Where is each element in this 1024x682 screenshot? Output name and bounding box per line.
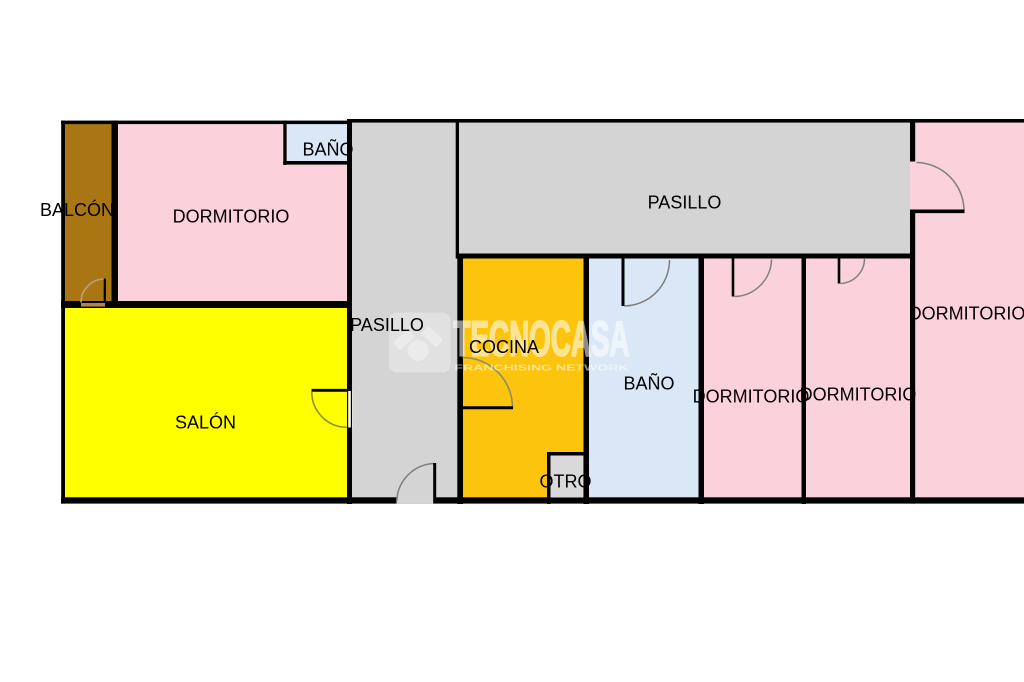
svg-text:BALCÓN: BALCÓN [40,199,114,220]
svg-text:DORMITORIO: DORMITORIO [173,207,290,227]
svg-text:OTRO: OTRO [540,472,592,492]
svg-text:DORMITORIO: DORMITORIO [693,387,810,407]
svg-text:FRANCHISING NETWORK: FRANCHISING NETWORK [455,363,630,373]
svg-text:BAÑO: BAÑO [302,139,353,160]
svg-text:PASILLO: PASILLO [350,315,424,335]
svg-text:SALÓN: SALÓN [175,412,236,433]
svg-text:BAÑO: BAÑO [623,373,674,394]
svg-text:DORMITORIO: DORMITORIO [909,304,1024,324]
svg-text:DORMITORIO: DORMITORIO [800,385,917,405]
svg-text:PASILLO: PASILLO [648,193,722,213]
svg-text:COCINA: COCINA [469,337,539,357]
